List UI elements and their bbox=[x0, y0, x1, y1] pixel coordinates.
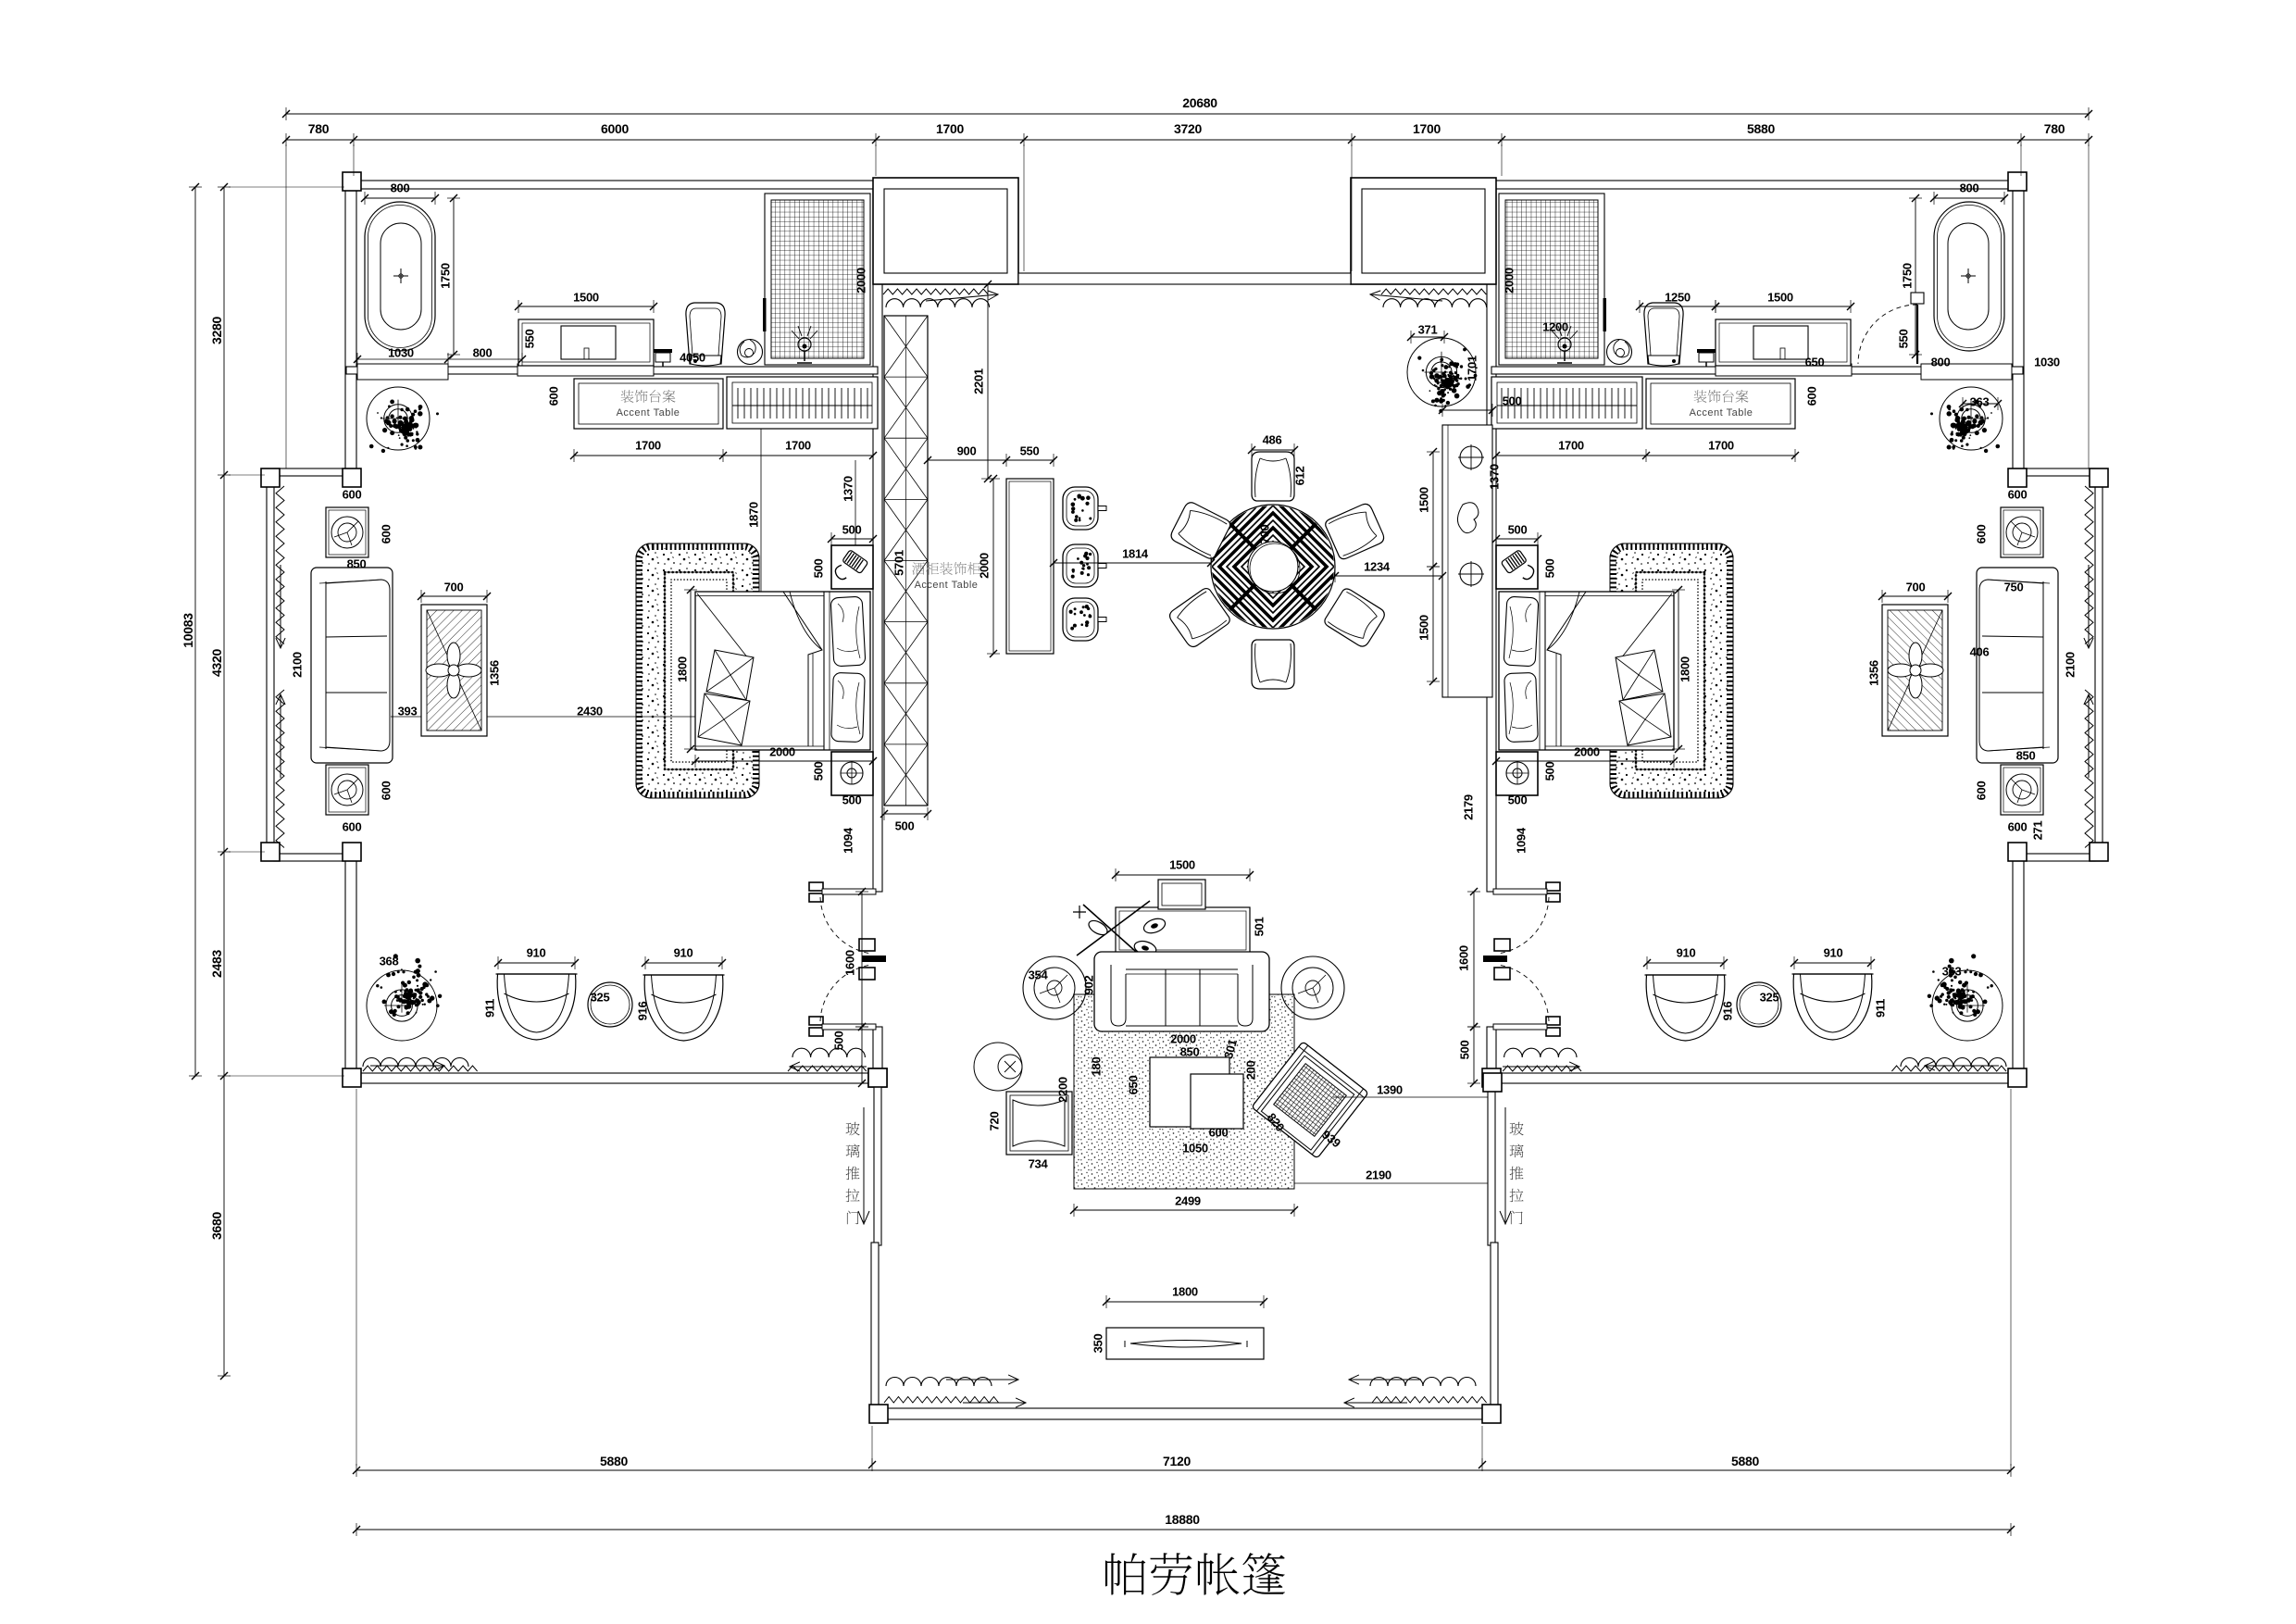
svg-text:6000: 6000 bbox=[601, 121, 629, 136]
svg-text:2000: 2000 bbox=[855, 268, 868, 294]
svg-text:1870: 1870 bbox=[747, 502, 761, 528]
svg-text:2000: 2000 bbox=[769, 745, 795, 759]
svg-text:1050: 1050 bbox=[1182, 1142, 1208, 1156]
svg-text:1356: 1356 bbox=[1867, 660, 1881, 686]
svg-text:2000: 2000 bbox=[1503, 268, 1516, 294]
svg-text:350: 350 bbox=[1092, 1334, 1105, 1354]
svg-text:500: 500 bbox=[812, 559, 826, 579]
svg-text:2100: 2100 bbox=[291, 652, 305, 678]
svg-text:1500: 1500 bbox=[1417, 615, 1431, 641]
svg-text:1030: 1030 bbox=[388, 346, 414, 360]
svg-text:406: 406 bbox=[1970, 645, 1990, 659]
svg-text:1600: 1600 bbox=[843, 950, 857, 976]
svg-text:363: 363 bbox=[1970, 395, 1990, 409]
svg-text:850: 850 bbox=[2016, 749, 2036, 763]
svg-text:650: 650 bbox=[1127, 1076, 1141, 1095]
svg-text:4050: 4050 bbox=[680, 351, 705, 365]
svg-text:1500: 1500 bbox=[1417, 487, 1431, 513]
svg-text:500: 500 bbox=[1508, 523, 1528, 537]
svg-text:500: 500 bbox=[1543, 559, 1557, 579]
svg-text:500: 500 bbox=[895, 819, 915, 833]
svg-text:180: 180 bbox=[1090, 1057, 1104, 1077]
svg-text:2430: 2430 bbox=[577, 705, 603, 718]
svg-text:371: 371 bbox=[1418, 323, 1438, 337]
svg-text:20680: 20680 bbox=[1182, 95, 1217, 110]
svg-text:1700: 1700 bbox=[936, 121, 964, 136]
svg-text:Accent Table: Accent Table bbox=[617, 407, 680, 418]
svg-text:916: 916 bbox=[1721, 1002, 1735, 1021]
svg-text:600: 600 bbox=[1805, 387, 1819, 406]
svg-text:393: 393 bbox=[398, 705, 418, 718]
svg-text:800: 800 bbox=[473, 346, 493, 360]
svg-text:780: 780 bbox=[308, 121, 330, 136]
svg-text:1094: 1094 bbox=[842, 827, 855, 854]
svg-text:2190: 2190 bbox=[1366, 1168, 1391, 1182]
svg-text:850: 850 bbox=[347, 557, 367, 571]
svg-text:1370: 1370 bbox=[842, 476, 855, 502]
svg-text:1750: 1750 bbox=[439, 263, 453, 289]
svg-text:1030: 1030 bbox=[2034, 356, 2060, 369]
svg-text:10083: 10083 bbox=[181, 613, 195, 648]
svg-text:325: 325 bbox=[591, 991, 610, 1005]
svg-text:800: 800 bbox=[391, 181, 410, 195]
svg-text:1814: 1814 bbox=[1122, 547, 1149, 561]
svg-text:1700: 1700 bbox=[1558, 439, 1584, 453]
svg-text:600: 600 bbox=[343, 488, 362, 502]
svg-text:1800: 1800 bbox=[1678, 656, 1692, 682]
svg-text:1500: 1500 bbox=[1767, 291, 1793, 305]
svg-text:368: 368 bbox=[380, 955, 399, 968]
svg-text:325: 325 bbox=[1760, 991, 1779, 1005]
svg-text:780: 780 bbox=[2044, 121, 2065, 136]
svg-text:1500: 1500 bbox=[1169, 858, 1195, 872]
svg-text:911: 911 bbox=[1874, 999, 1888, 1018]
svg-text:850: 850 bbox=[1180, 1045, 1200, 1059]
svg-text:271: 271 bbox=[2031, 821, 2045, 841]
svg-text:500: 500 bbox=[1543, 762, 1557, 781]
svg-text:700: 700 bbox=[444, 581, 464, 594]
svg-text:1700: 1700 bbox=[635, 439, 661, 453]
svg-text:910: 910 bbox=[674, 946, 693, 960]
svg-text:911: 911 bbox=[483, 999, 497, 1018]
svg-text:550: 550 bbox=[523, 330, 537, 349]
svg-text:2200: 2200 bbox=[1056, 1077, 1070, 1103]
svg-text:500: 500 bbox=[842, 793, 862, 807]
svg-text:910: 910 bbox=[1677, 946, 1696, 960]
svg-text:1234: 1234 bbox=[1364, 560, 1391, 574]
svg-text:720: 720 bbox=[988, 1112, 1002, 1131]
svg-text:600: 600 bbox=[1209, 1126, 1229, 1140]
svg-text:3280: 3280 bbox=[209, 317, 224, 344]
svg-text:1094: 1094 bbox=[1515, 827, 1529, 854]
svg-text:1700: 1700 bbox=[1708, 439, 1734, 453]
svg-text:800: 800 bbox=[1931, 356, 1951, 369]
svg-text:200: 200 bbox=[1244, 1061, 1258, 1081]
svg-text:800: 800 bbox=[1960, 181, 1979, 195]
svg-text:1200: 1200 bbox=[1542, 320, 1568, 334]
svg-text:612: 612 bbox=[1293, 467, 1307, 486]
svg-text:Accent Table: Accent Table bbox=[915, 580, 979, 591]
svg-text:650: 650 bbox=[1805, 356, 1825, 369]
svg-text:1800: 1800 bbox=[676, 656, 690, 682]
svg-text:5701: 5701 bbox=[892, 550, 906, 576]
svg-text:550: 550 bbox=[1020, 444, 1040, 458]
svg-text:486: 486 bbox=[1263, 433, 1282, 447]
svg-text:Accent Table: Accent Table bbox=[1690, 407, 1753, 418]
svg-text:734: 734 bbox=[1029, 1157, 1049, 1171]
svg-text:500: 500 bbox=[1503, 394, 1522, 408]
svg-text:5880: 5880 bbox=[1747, 121, 1775, 136]
svg-text:500: 500 bbox=[832, 1031, 846, 1051]
svg-text:1356: 1356 bbox=[488, 660, 502, 686]
svg-text:1700: 1700 bbox=[785, 439, 811, 453]
svg-text:500: 500 bbox=[812, 762, 826, 781]
svg-text:500: 500 bbox=[1508, 793, 1528, 807]
svg-text:5880: 5880 bbox=[1731, 1454, 1759, 1468]
svg-text:500: 500 bbox=[842, 523, 862, 537]
svg-text:5880: 5880 bbox=[600, 1454, 628, 1468]
svg-text:910: 910 bbox=[527, 946, 546, 960]
svg-text:4320: 4320 bbox=[209, 649, 224, 677]
svg-text:3720: 3720 bbox=[1174, 121, 1202, 136]
svg-text:700: 700 bbox=[1258, 525, 1272, 544]
svg-text:1500: 1500 bbox=[573, 291, 599, 305]
svg-text:3680: 3680 bbox=[209, 1212, 224, 1240]
svg-text:900: 900 bbox=[957, 444, 977, 458]
svg-text:2000: 2000 bbox=[978, 553, 992, 579]
svg-text:600: 600 bbox=[380, 781, 393, 801]
svg-text:700: 700 bbox=[1906, 581, 1926, 594]
svg-text:7120: 7120 bbox=[1163, 1454, 1191, 1468]
svg-text:501: 501 bbox=[1253, 918, 1267, 937]
svg-text:600: 600 bbox=[380, 525, 393, 544]
svg-text:1700: 1700 bbox=[1413, 121, 1441, 136]
svg-text:1250: 1250 bbox=[1665, 291, 1691, 305]
svg-text:500: 500 bbox=[1458, 1041, 1472, 1060]
svg-text:910: 910 bbox=[1824, 946, 1843, 960]
svg-text:1750: 1750 bbox=[1901, 263, 1915, 289]
svg-text:1701: 1701 bbox=[1466, 356, 1479, 381]
svg-text:600: 600 bbox=[1975, 525, 1989, 544]
svg-text:363: 363 bbox=[1942, 965, 1962, 979]
svg-text:354: 354 bbox=[1029, 968, 1049, 982]
svg-text:600: 600 bbox=[547, 387, 561, 406]
svg-text:2201: 2201 bbox=[972, 369, 986, 394]
svg-text:550: 550 bbox=[1897, 330, 1911, 349]
svg-text:916: 916 bbox=[636, 1002, 650, 1021]
svg-text:600: 600 bbox=[1975, 781, 1989, 801]
svg-text:2000: 2000 bbox=[1574, 745, 1600, 759]
svg-text:600: 600 bbox=[343, 820, 362, 834]
svg-text:1390: 1390 bbox=[1377, 1083, 1403, 1097]
svg-text:600: 600 bbox=[2008, 488, 2028, 502]
svg-text:1600: 1600 bbox=[1457, 945, 1471, 971]
svg-text:2499: 2499 bbox=[1175, 1194, 1201, 1208]
svg-text:2179: 2179 bbox=[1462, 794, 1476, 820]
svg-text:750: 750 bbox=[2004, 581, 2024, 594]
svg-text:2100: 2100 bbox=[2064, 652, 2078, 678]
svg-text:18880: 18880 bbox=[1165, 1512, 1200, 1527]
svg-text:1800: 1800 bbox=[1172, 1285, 1198, 1299]
svg-text:1370: 1370 bbox=[1488, 464, 1502, 490]
svg-text:2483: 2483 bbox=[209, 950, 224, 978]
svg-text:902: 902 bbox=[1082, 976, 1096, 995]
svg-text:2000: 2000 bbox=[1170, 1032, 1196, 1046]
svg-text:600: 600 bbox=[2008, 820, 2028, 834]
